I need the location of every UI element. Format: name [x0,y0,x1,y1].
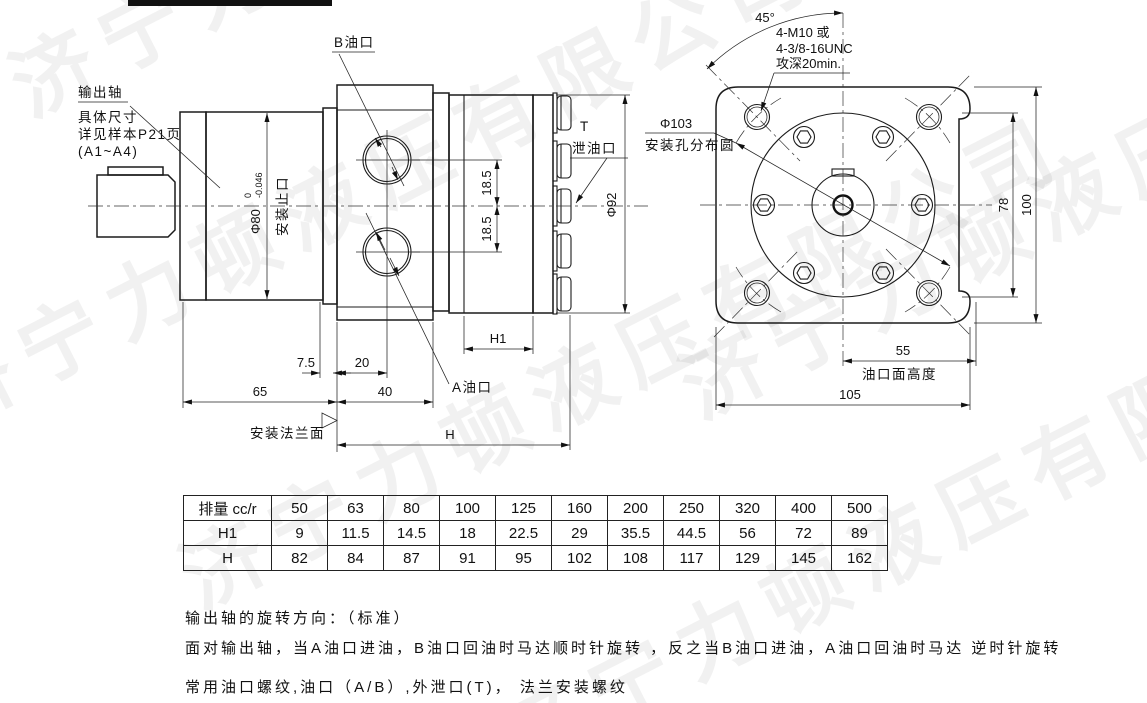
table-row-h1: H1 9 11.5 14.5 18 22.5 29 35.5 44.5 56 7… [184,521,888,546]
table-cell: 91 [440,546,496,571]
shaft-note-3: (A1~A4) [78,144,138,159]
spigot-tol-lower: -0.046 [254,172,264,198]
spigot-label: 安装止口 [275,176,290,236]
table-row-label: H [184,546,272,571]
table-cell: 29 [552,521,608,546]
table-cell: 100 [440,496,496,521]
drain-t-label: T [580,119,590,134]
table-cell: 500 [832,496,888,521]
port-face-height-dim: 55 [896,343,910,358]
table-cell: 108 [608,546,664,571]
table-row-h: H 82 84 87 91 95 102 108 117 129 145 162 [184,546,888,571]
table-cell: 89 [832,521,888,546]
flange-width-dim: 105 [839,387,861,402]
port-b-label: B油口 [334,35,375,50]
table-cell: 82 [272,546,328,571]
table-cell: 22.5 [496,521,552,546]
angle-dim: 45° [755,10,775,25]
drawing-canvas: 济宁力顿液压有限公司 济宁力顿液压有限公司 济宁力顿液压有限公司 济宁力顿液压有… [0,0,1147,703]
table-cell: 125 [496,496,552,521]
table-cell: 35.5 [608,521,664,546]
body-len-dim: 40 [378,384,392,399]
mounting-face-label: 安装法兰面 [250,426,325,441]
port-spacing-bottom-dim: 18.5 [479,216,494,241]
table-cell: 145 [776,546,832,571]
table-cell: 87 [384,546,440,571]
spigot-dia-dim: Φ80 [248,209,263,234]
h-dim: H [445,427,454,442]
note-thread-types: 常用油口螺纹,油口（A/B）,外泄口(T)， 法兰安装螺纹 [185,676,628,697]
table-row-displacement: 排量 cc/r 50 63 80 100 125 160 200 250 320… [184,496,888,521]
table-cell: 162 [832,546,888,571]
table-cell: 56 [720,521,776,546]
table-row-label: 排量 cc/r [184,496,272,521]
thread-note-2: 4-3/8-16UNC [776,41,853,56]
table-cell: 95 [496,546,552,571]
output-shaft-label: 输出轴 [78,85,123,100]
port-offset-dim: 20 [355,355,369,370]
inner-height-dim: 78 [996,198,1011,212]
shaft-len-dim: 65 [253,384,267,399]
thread-note-1: 4-M10 或 [776,25,829,40]
table-row-label: H1 [184,521,272,546]
table-cell: 200 [608,496,664,521]
outer-dia-dim: Φ92 [604,193,619,218]
bolt-circle-dia: Φ103 [660,116,692,131]
offset-75-dim: 7.5 [297,355,315,370]
company-watermark: 济宁力顿液压有限公司 济宁力顿液压有限公司 济宁力顿液压有限公司 济宁力顿液压有… [0,0,1147,703]
table-cell: 84 [328,546,384,571]
note-rotation-title: 输出轴的旋转方向：（标准） [185,607,412,628]
table-cell: 102 [552,546,608,571]
table-cell: 63 [328,496,384,521]
table-cell: 400 [776,496,832,521]
table-cell: 72 [776,521,832,546]
spigot-tol-upper: 0 [243,193,253,198]
h1-dim: H1 [490,331,507,346]
port-face-label: 油口面高度 [862,366,937,382]
note-rotation-detail: 面对输出轴，当A油口进油，B油口回油时马达顺时针旋转 ，反之当B油口进油，A油口… [185,637,1061,658]
title-underline [128,0,332,6]
table-cell: 160 [552,496,608,521]
bolt-circle-label: 安装孔分布圆 [645,138,735,153]
shaft-note-1: 具体尺寸 [78,110,138,125]
drain-port-label: 泄油口 [572,141,617,156]
port-a-label: A油口 [452,380,493,395]
table-cell: 320 [720,496,776,521]
table-cell: 9 [272,521,328,546]
displacement-spec-table: 排量 cc/r 50 63 80 100 125 160 200 250 320… [183,495,888,571]
table-cell: 44.5 [664,521,720,546]
table-cell: 11.5 [328,521,384,546]
table-cell: 117 [664,546,720,571]
table-cell: 250 [664,496,720,521]
thread-note-3: 攻深20min. [776,56,841,71]
shaft-note-2: 详见样本P21页 [78,127,182,142]
table-cell: 50 [272,496,328,521]
table-cell: 129 [720,546,776,571]
table-cell: 18 [440,521,496,546]
flange-height-dim: 100 [1019,194,1034,216]
table-cell: 14.5 [384,521,440,546]
table-cell: 80 [384,496,440,521]
port-spacing-top-dim: 18.5 [479,170,494,195]
hydraulic-motor-drawing-page: 济宁力顿液压有限公司 济宁力顿液压有限公司 济宁力顿液压有限公司 济宁力顿液压有… [0,0,1147,703]
